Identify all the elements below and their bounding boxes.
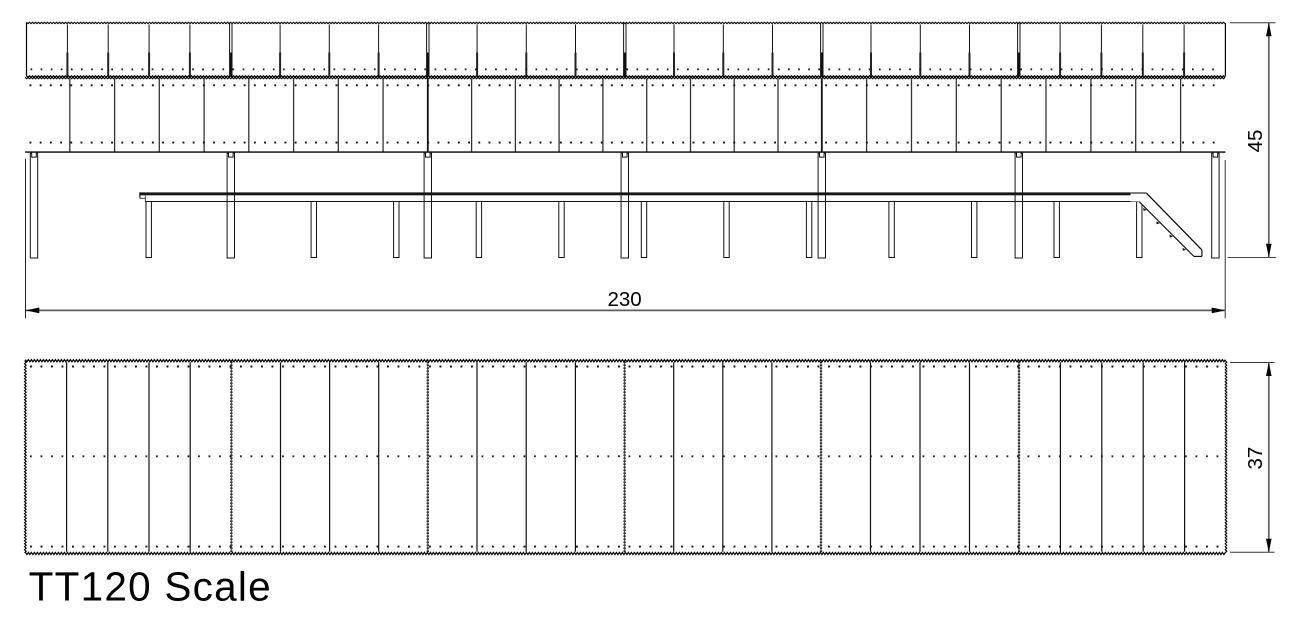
svg-text:230: 230 [607,288,641,311]
svg-text:37: 37 [1244,447,1267,470]
svg-text:45: 45 [1244,130,1267,153]
svg-text:TT120 Scale: TT120 Scale [29,564,272,610]
